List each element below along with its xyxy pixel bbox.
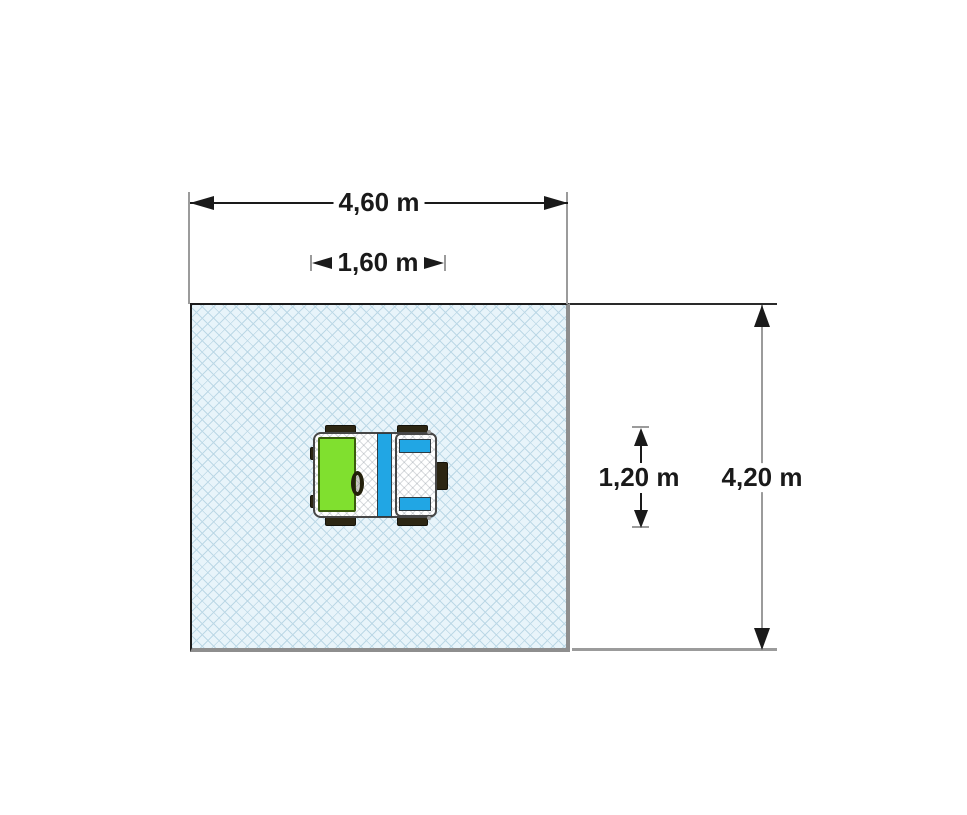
arrowhead-left-icon: [190, 196, 214, 210]
dim-label-equipment-width: 1,60 m: [333, 248, 424, 277]
equipment-top-view: [308, 424, 450, 528]
arrowhead-down-icon: [634, 510, 648, 528]
extension-line-bottom: [572, 648, 777, 651]
steering-wheel: [351, 471, 364, 496]
dim-shaft-top: [640, 446, 642, 463]
seat-front-bar: [399, 497, 431, 511]
mount-dot-bottom: [427, 516, 431, 520]
arrowhead-right-icon: [424, 257, 444, 269]
arrowhead-down-icon: [754, 628, 770, 650]
vehicle-seat: [395, 433, 437, 517]
vehicle-hood: [318, 437, 356, 512]
arrowhead-up-icon: [754, 305, 770, 327]
mount-dot-top: [427, 430, 431, 434]
vehicle-roll-bar: [377, 433, 392, 517]
arrowhead-left-icon: [312, 257, 332, 269]
dim-label-equipment-depth: 1,20 m: [594, 463, 685, 492]
extension-line-top: [570, 303, 777, 305]
dim-label-area-depth: 4,20 m: [717, 463, 808, 492]
dim-shaft-bottom: [640, 493, 642, 510]
arrowhead-up-icon: [634, 428, 648, 446]
tick-right: [444, 255, 446, 271]
arrowhead-right-icon: [544, 196, 568, 210]
diagram-canvas: 4,60 m 1,60 m 1,20 m 4,20 m: [0, 0, 967, 815]
seat-back-bar: [399, 439, 431, 453]
dim-label-area-width: 4,60 m: [334, 188, 425, 217]
tow-hitch: [436, 462, 448, 490]
